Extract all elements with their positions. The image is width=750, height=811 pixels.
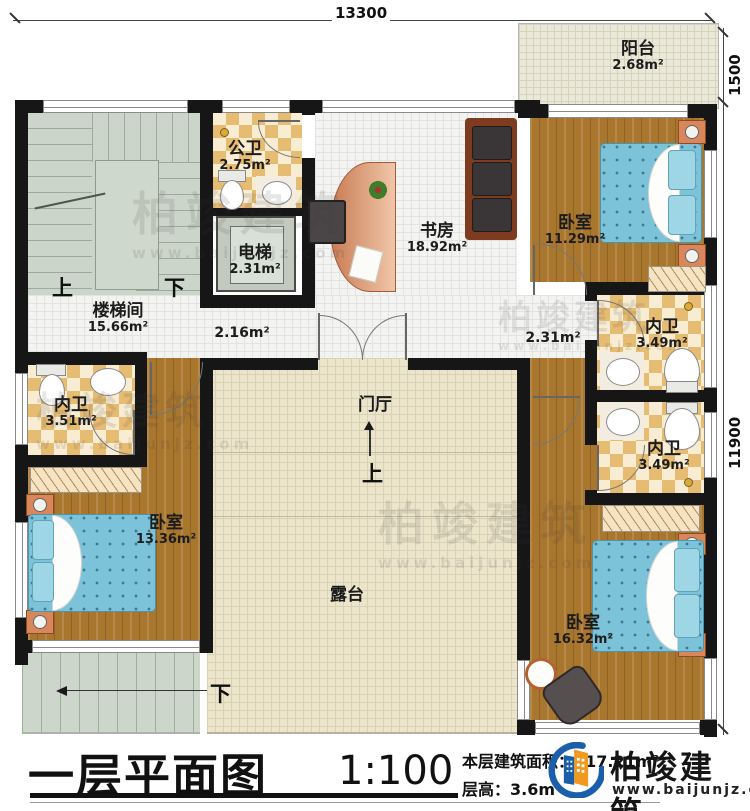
wardrobe: [602, 505, 700, 532]
watermark: 柏竣建筑 www.baijunjz.com: [132, 178, 349, 262]
outdoor-down-arrow: [67, 690, 207, 691]
foyer-up-arrow: [369, 430, 371, 456]
wall: [700, 720, 717, 735]
sofa-cushion: [472, 126, 512, 160]
company-name: 柏竣建筑: [610, 742, 748, 811]
room-name: 阳台: [598, 40, 678, 59]
wall: [200, 295, 315, 308]
dim-right-upper-label: 1500: [726, 44, 744, 96]
dim-tick: [704, 12, 715, 23]
room-label-bedroom-ne: 卧室 11.29m²: [535, 214, 615, 248]
room-area: 16.32m²: [538, 633, 628, 648]
dim-tick: [9, 12, 20, 23]
floor-height-text: 层高：3.6m: [462, 776, 555, 800]
watermark-site: www.baijunjz.com: [498, 339, 685, 353]
room-name: 公卫: [212, 140, 278, 159]
wall: [517, 720, 535, 735]
room-name: 卧室: [538, 614, 628, 633]
room-area: 11.29m²: [535, 233, 615, 248]
door-knob: [684, 302, 693, 311]
room-name: 露台: [317, 586, 377, 605]
room-area: 3.49m²: [627, 459, 701, 474]
toilet-tank: [666, 381, 698, 393]
watermark-site: www.baijunjz.com: [132, 244, 349, 262]
sofa-cushion: [472, 162, 512, 196]
wall: [302, 100, 315, 115]
wall: [15, 100, 28, 373]
room-label-study: 书房 18.92m²: [395, 222, 479, 256]
room-label-bedroom-se: 卧室 16.32m²: [538, 614, 628, 648]
sink: [606, 408, 640, 436]
room-name: 卧室: [122, 514, 210, 533]
dim-right-lower-label: 11900: [726, 385, 744, 469]
room-area: 18.92m²: [395, 241, 479, 256]
room-name: 书房: [395, 222, 479, 241]
room-area: 13.36m²: [122, 533, 210, 548]
watermark-text: 柏竣建筑: [36, 380, 253, 435]
wardrobe: [648, 266, 706, 292]
company-logo-icon: [548, 742, 604, 802]
window: [15, 373, 28, 445]
door-knob: [684, 478, 693, 487]
window: [704, 285, 717, 388]
drawing-scale: 1:100: [338, 748, 453, 794]
pillow: [674, 594, 700, 638]
pillow: [32, 562, 54, 602]
window: [222, 100, 290, 113]
wall: [585, 493, 704, 505]
pillow: [668, 150, 696, 190]
wall: [704, 388, 717, 412]
wall: [15, 640, 32, 653]
corridor-area-label: 2.16m²: [210, 325, 274, 341]
room-label-balcony: 阳台 2.68m²: [598, 40, 678, 74]
room-name: 门厅: [345, 396, 405, 415]
nightstand: [26, 610, 54, 634]
room-area: 2.31m²: [222, 263, 288, 278]
watermark-text: 柏竣建筑: [378, 488, 595, 554]
dim-top-label: 13300: [332, 4, 390, 22]
window: [32, 640, 200, 653]
stair-down-label: 下: [164, 272, 185, 302]
wall: [704, 478, 717, 658]
foyer-up-arrow-head: [364, 421, 374, 430]
room-area: 2.75m²: [212, 159, 278, 174]
room-label-stairwell: 楼梯间 15.66m²: [73, 302, 163, 336]
foyer-step-line: [207, 452, 517, 453]
window: [15, 522, 28, 618]
light-fixture: [220, 128, 229, 137]
window: [43, 100, 188, 113]
room-label-terrace: 露台: [317, 586, 377, 605]
company-site: www.baijunjz.com: [612, 782, 750, 798]
wall: [585, 390, 597, 445]
wall: [408, 358, 517, 370]
watermark-site: www.baijunjz.com: [36, 435, 253, 453]
watermark: 柏竣建筑 www.baijunjz.com: [498, 290, 685, 353]
room-label-bedroom-sw: 卧室 13.36m²: [122, 514, 210, 548]
wardrobe: [30, 467, 142, 493]
pillow: [32, 520, 54, 560]
foyer-up-label: 上: [362, 458, 383, 488]
wall: [15, 455, 147, 467]
window: [535, 722, 700, 734]
dim-line-right: [723, 28, 724, 735]
outdoor-down-label: 下: [210, 678, 231, 708]
entry-door-leaf: [405, 313, 407, 360]
room-label-bath-e: 内卫 3.49m²: [627, 440, 701, 474]
floor-plan-sheet: 阳台 2.68m² 公卫 2.75m² 电梯 2.31m² 书房 18.92m²…: [0, 0, 750, 811]
stair-up-label: 上: [52, 272, 73, 302]
window: [704, 412, 717, 478]
pillow: [668, 195, 696, 235]
watermark: 柏竣建筑 www.baijunjz.com: [378, 488, 595, 572]
window-balcony: [548, 104, 688, 118]
room-name: 楼梯间: [73, 302, 163, 321]
wall: [213, 358, 318, 370]
nightstand: [678, 120, 706, 144]
plant: [368, 180, 388, 200]
room-area: 2.68m²: [598, 59, 678, 74]
watermark: 柏竣建筑 www.baijunjz.com: [36, 380, 253, 453]
sink: [606, 358, 640, 386]
nightstand: [678, 244, 706, 268]
pillow: [674, 548, 700, 592]
outdoor-stairs: [22, 652, 200, 734]
watermark-site: www.baijunjz.com: [378, 554, 595, 572]
watermark-text: 柏竣建筑: [132, 178, 349, 244]
stair-flight-top: [92, 112, 200, 162]
room-name: 卧室: [535, 214, 615, 233]
watermark-text: 柏竣建筑: [498, 290, 685, 339]
window: [322, 100, 515, 113]
wall: [518, 104, 548, 118]
room-area: 15.66m²: [73, 321, 163, 336]
company-logo: 柏竣建筑 www.baijunjz.com: [548, 742, 748, 804]
window: [704, 150, 717, 238]
room-label-foyer: 门厅: [345, 396, 405, 415]
room-label-public-bath: 公卫 2.75m²: [212, 140, 278, 174]
window: [704, 658, 717, 720]
room-name: 内卫: [627, 440, 701, 459]
nightstand: [26, 494, 54, 516]
floor-height-label: 层高：: [462, 780, 510, 799]
outdoor-down-arrow-head: [56, 686, 67, 696]
